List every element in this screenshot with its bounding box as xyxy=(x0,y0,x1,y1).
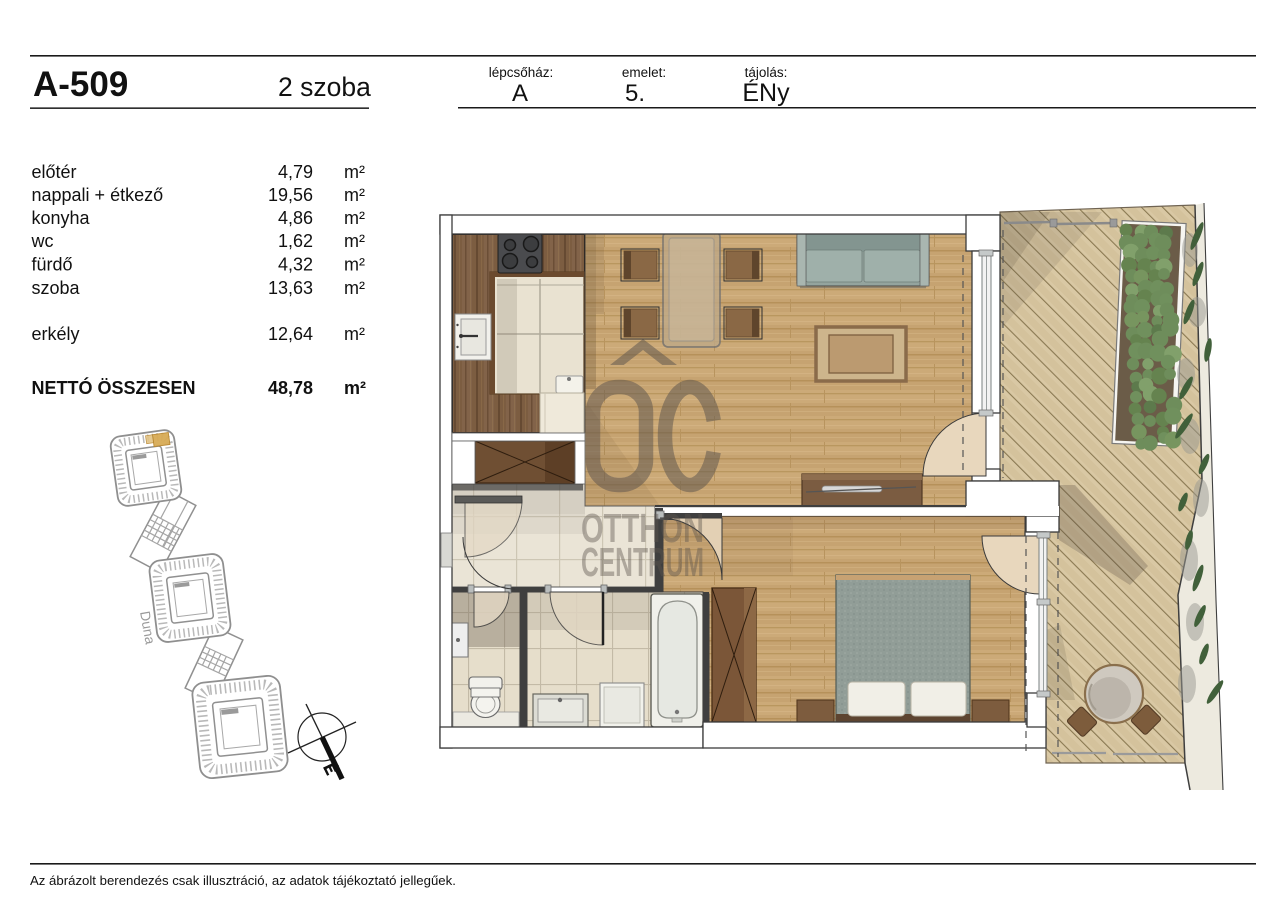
svg-text:NETTÓ ÖSSZESEN: NETTÓ ÖSSZESEN xyxy=(32,377,196,398)
svg-text:konyha: konyha xyxy=(32,208,91,228)
svg-text:48,78: 48,78 xyxy=(268,378,313,398)
svg-text:4,86: 4,86 xyxy=(278,208,313,228)
svg-text:m²: m² xyxy=(344,185,365,205)
svg-text:m²: m² xyxy=(344,378,366,398)
svg-text:13,63: 13,63 xyxy=(268,278,313,298)
svg-text:wc: wc xyxy=(31,231,54,251)
svg-text:m²: m² xyxy=(344,208,365,228)
svg-text:előtér: előtér xyxy=(32,162,77,182)
svg-text:A-509: A-509 xyxy=(33,65,128,104)
svg-text:19,56: 19,56 xyxy=(268,185,313,205)
svg-text:CENTRUM: CENTRUM xyxy=(581,539,704,585)
svg-text:m²: m² xyxy=(344,231,365,251)
svg-text:fürdő: fürdő xyxy=(32,255,73,275)
svg-text:A: A xyxy=(512,80,528,107)
svg-text:m²: m² xyxy=(344,324,365,344)
svg-text:ÉNy: ÉNy xyxy=(742,78,790,107)
svg-text:emelet:: emelet: xyxy=(622,65,666,80)
svg-text:szoba: szoba xyxy=(32,278,81,298)
svg-text:Az ábrázolt berendezés csak il: Az ábrázolt berendezés csak illusztráció… xyxy=(30,873,456,888)
svg-text:lépcsőház:: lépcsőház: xyxy=(489,65,554,80)
svg-text:erkély: erkély xyxy=(32,324,80,344)
svg-text:m²: m² xyxy=(344,278,365,298)
svg-text:2 szoba: 2 szoba xyxy=(278,72,371,102)
svg-text:m²: m² xyxy=(344,162,365,182)
svg-text:m²: m² xyxy=(344,255,365,275)
svg-text:12,64: 12,64 xyxy=(268,324,313,344)
svg-text:1,62: 1,62 xyxy=(278,231,313,251)
svg-text:tájolás:: tájolás: xyxy=(745,65,788,80)
svg-text:4,79: 4,79 xyxy=(278,162,313,182)
svg-text:nappali + étkező: nappali + étkező xyxy=(32,185,164,205)
svg-text:4,32: 4,32 xyxy=(278,255,313,275)
svg-text:5.: 5. xyxy=(625,80,645,107)
